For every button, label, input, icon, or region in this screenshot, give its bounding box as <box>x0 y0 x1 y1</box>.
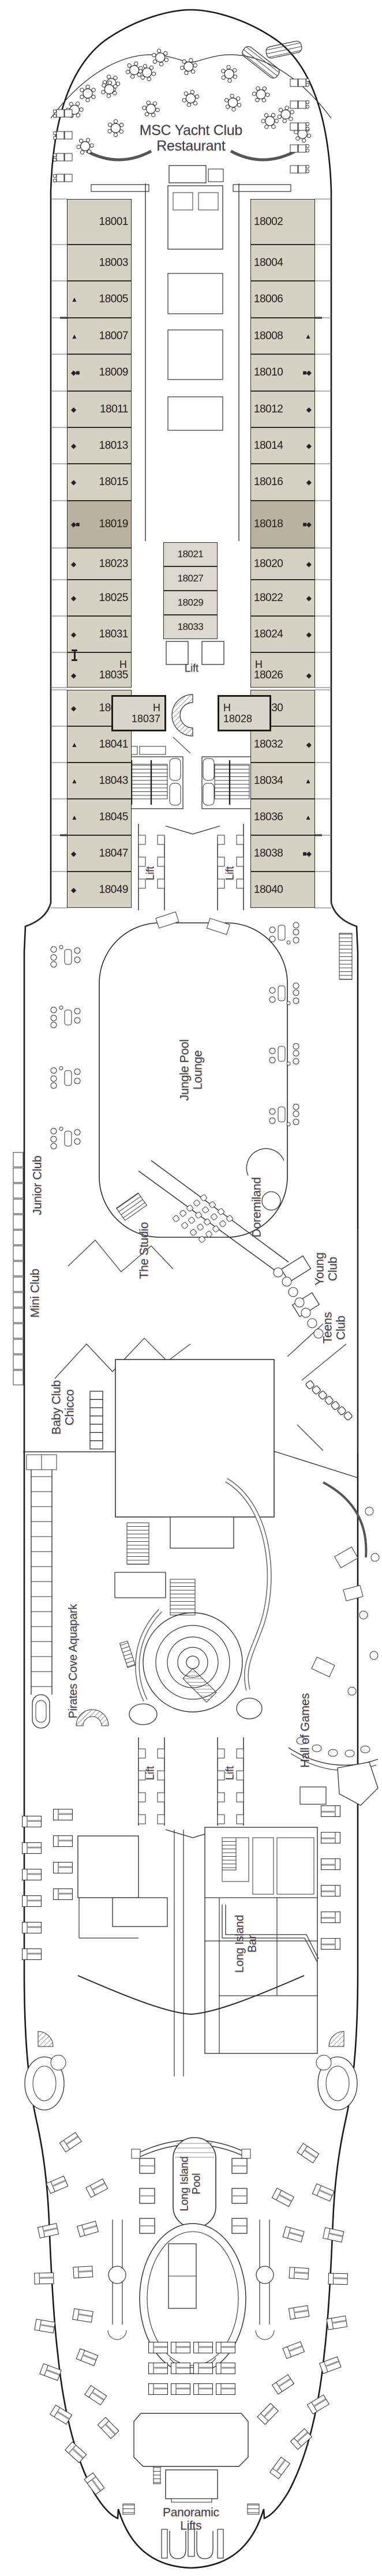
cabin-18009: ◆■18009 <box>67 354 132 391</box>
venue-label-young-club: Young Club <box>313 1241 339 1297</box>
cabin-18016: 18016◆ <box>250 464 315 501</box>
cabin-18019: ◆■18019 <box>67 501 132 548</box>
lift-label: Lift <box>185 663 199 675</box>
cabin-symbol-icons: ◆ <box>71 850 76 857</box>
cabin-18012: 18012◆ <box>250 391 315 427</box>
cabin-18043: ▲18043 <box>67 763 132 799</box>
venue-label-the-studio: The Studio <box>138 1222 152 1279</box>
cabin-18032: 18032◆ <box>250 726 315 763</box>
cabin-symbol-icons: ◆ <box>71 406 76 413</box>
cabin-number: 18012 <box>254 403 283 416</box>
cabin-number: 18036 <box>254 811 283 824</box>
cabin-18037: H18037 <box>111 695 166 731</box>
cabin-symbol-icons: ▲ <box>305 778 311 784</box>
cabin-number: 18047 <box>99 847 128 860</box>
cabin-number: 18041 <box>99 738 128 751</box>
cabin-symbol-icons: ◆ <box>306 442 311 449</box>
cabin-18033: 18033 <box>163 615 218 639</box>
cabin-number: 18023 <box>99 558 128 570</box>
venue-label-baby-club-chicco: Baby Club Chicco <box>50 1380 76 1435</box>
cabin-symbol-icons: ◆ <box>71 672 76 679</box>
cabin-18041: ▲18041 <box>67 726 132 763</box>
cabin-symbol-icons: ■◆ <box>303 521 311 528</box>
cabin-18021: 18021 <box>163 542 218 566</box>
cabin-number: 18043 <box>99 775 128 787</box>
cabin-18008: 18008▲ <box>250 318 315 354</box>
cabin-number: 18005 <box>99 293 128 306</box>
cabin-18002: 18002 <box>250 199 315 245</box>
cabin-number: 18003 <box>99 257 128 269</box>
cabin-symbol-icons: ◆■ <box>71 369 79 376</box>
lift-label: Lift <box>145 1766 158 1780</box>
cabin-symbol-icons: ◆ <box>71 561 76 568</box>
cabin-number: 18037 <box>117 714 160 724</box>
cabin-symbol-icons: ▲ <box>71 778 77 784</box>
cabin-18022: 18022◆ <box>250 580 315 616</box>
cabin-number: 18011 <box>100 403 128 416</box>
cabin-18006: 18006 <box>250 281 315 318</box>
cabin-number: 18040 <box>254 884 283 896</box>
cabin-number: 18016 <box>254 476 283 489</box>
deck-plan: 1800118003▲18005▲18007◆■18009◆18011◆1801… <box>0 0 382 2576</box>
venue-label-long-island-bar: Long Island Bar <box>234 1915 259 1973</box>
cabin-number: 18033 <box>178 621 204 633</box>
cabin-symbol-icons: ▲ <box>305 333 311 340</box>
cabin-number: 18020 <box>254 558 283 570</box>
cabin-18018: 18018■◆ <box>250 501 315 548</box>
cabin-number: 18045 <box>99 811 128 824</box>
venue-label-junior-club: Junior Club <box>32 1156 45 1215</box>
cabin-18007: ▲18007 <box>67 318 132 354</box>
cabin-symbol-icons: ▲ <box>71 296 77 303</box>
cabin-number: 18031 <box>99 628 128 641</box>
venue-label-restaurant-title: MSC Yacht Club Restaurant <box>140 123 242 154</box>
cabin-symbol-icons: ◆ <box>71 887 76 893</box>
cabin-symbol-icons: ◆ <box>306 561 311 568</box>
cabin-18028: H18028 <box>218 695 271 731</box>
cabin-number: 18022 <box>254 592 283 604</box>
cabin-number: 18038 <box>254 847 283 860</box>
cabin-symbol-icons: ◆ <box>306 741 311 748</box>
cabin-number: 18001 <box>99 216 128 228</box>
cabin-18015: ◆18015 <box>67 464 132 501</box>
cabin-18036: 18036▲ <box>250 799 315 835</box>
cabin-18014: 18014◆ <box>250 427 315 464</box>
venue-label-long-island-pool: Long Island Pool <box>179 2157 203 2211</box>
cabin-18031: ◆18031 <box>67 616 132 652</box>
venue-label-pirates-cove-aquapark: Pirates Cove Aquapark <box>68 1604 80 1718</box>
cabin-number: 18026 <box>254 670 283 681</box>
venue-label-teens-club: Teens Club <box>321 1312 347 1344</box>
cabin-18001: 18001 <box>67 199 132 245</box>
cabin-18038: 18038■◆ <box>250 835 315 872</box>
cabin-18047: ◆18047 <box>67 835 132 872</box>
cabin-symbol-icons: ◆ <box>306 595 311 602</box>
venue-label-doremiland: Doremiland <box>251 1177 264 1237</box>
cabin-symbol-icons: ◆■ <box>71 521 79 528</box>
cabin-symbol-icons: ◆ <box>306 672 311 679</box>
venue-label-panoramic-lifts: Panoramic Lifts <box>163 2506 219 2532</box>
cabin-number: 18024 <box>254 628 283 641</box>
cabin-number: 18007 <box>99 330 128 343</box>
cabin-18025: ◆18025 <box>67 580 132 616</box>
cabin-18040: 18040 <box>250 872 315 908</box>
cabin-number: 18015 <box>99 476 128 489</box>
connecting-rooms-icon <box>72 649 77 661</box>
cabin-18049: ◆18049 <box>67 872 132 908</box>
cabin-18005: ▲18005 <box>67 281 132 318</box>
cabin-symbol-icons: ◆ <box>71 705 76 712</box>
cabin-number: 18028 <box>223 714 265 724</box>
cabin-symbol-icons: ◆ <box>306 406 311 413</box>
cabin-symbol-icons: ▲ <box>71 814 77 821</box>
cabin-number: 18025 <box>99 592 128 604</box>
lift-label: Lift <box>145 866 158 880</box>
cabin-18026: H18026◆ <box>250 652 315 688</box>
cabin-number: 18014 <box>254 440 283 452</box>
lift-label: Lift <box>225 1766 237 1780</box>
cabin-18020: 18020◆ <box>250 548 315 580</box>
venue-label-mini-club: Mini Club <box>29 1269 43 1318</box>
cabin-number: 18008 <box>254 330 283 343</box>
cabin-18029: 18029 <box>163 591 218 615</box>
cabin-18027: 18027 <box>163 566 218 591</box>
cabin-number: 18049 <box>99 884 128 896</box>
cabin-symbol-icons: ◆ <box>71 479 76 486</box>
cabin-18011: ◆18011 <box>67 391 132 427</box>
cabin-number: 18034 <box>254 775 283 787</box>
cabin-number: 18032 <box>254 738 283 751</box>
cabin-symbol-icons: ◆ <box>71 631 76 638</box>
cabin-number: 18035 <box>99 670 128 681</box>
cabin-number: 18019 <box>99 518 128 531</box>
handicap-letter: H <box>117 703 160 714</box>
handicap-letter: H <box>223 703 265 714</box>
cabin-18034: 18034▲ <box>250 763 315 799</box>
cabin-18045: ▲18045 <box>67 799 132 835</box>
cabin-symbol-icons: ▲ <box>71 333 77 340</box>
cabin-symbol-icons: ◆ <box>71 442 76 449</box>
cabin-number: 18004 <box>254 257 283 269</box>
cabin-number: 18006 <box>254 293 283 306</box>
cabin-18013: ◆18013 <box>67 427 132 464</box>
cabin-number: 18018 <box>254 518 283 531</box>
cabin-number: 18009 <box>99 366 128 379</box>
cabin-symbol-icons: ■◆ <box>303 850 311 857</box>
cabin-number: 18021 <box>178 549 204 560</box>
cabin-symbol-icons: ▲ <box>71 741 77 748</box>
cabin-18010: 18010■◆ <box>250 354 315 391</box>
cabin-symbol-icons: ◆ <box>306 479 311 486</box>
cabin-number: 18013 <box>99 440 128 452</box>
cabin-18003: 18003 <box>67 245 132 281</box>
cabin-number: 18029 <box>178 597 204 609</box>
cabin-symbol-icons: ▲ <box>305 814 311 821</box>
cabin-18024: 18024◆ <box>250 616 315 652</box>
venue-label-jungle-pool-lounge: Jungle Pool Lounge <box>178 1039 204 1101</box>
lift-label: Lift <box>225 866 237 880</box>
cabin-symbol-icons: ◆ <box>71 595 76 602</box>
cabin-number: 18027 <box>178 573 204 584</box>
cabin-18023: ◆18023 <box>67 548 132 580</box>
venue-label-hall-of-games: Hall of Games <box>299 1693 313 1767</box>
cabin-symbol-icons: ◆ <box>306 631 311 638</box>
cabin-number: 18002 <box>254 216 283 228</box>
cabin-symbol-icons: ■◆ <box>303 369 311 376</box>
cabin-18004: 18004 <box>250 245 315 281</box>
cabin-number: 18010 <box>254 366 283 379</box>
